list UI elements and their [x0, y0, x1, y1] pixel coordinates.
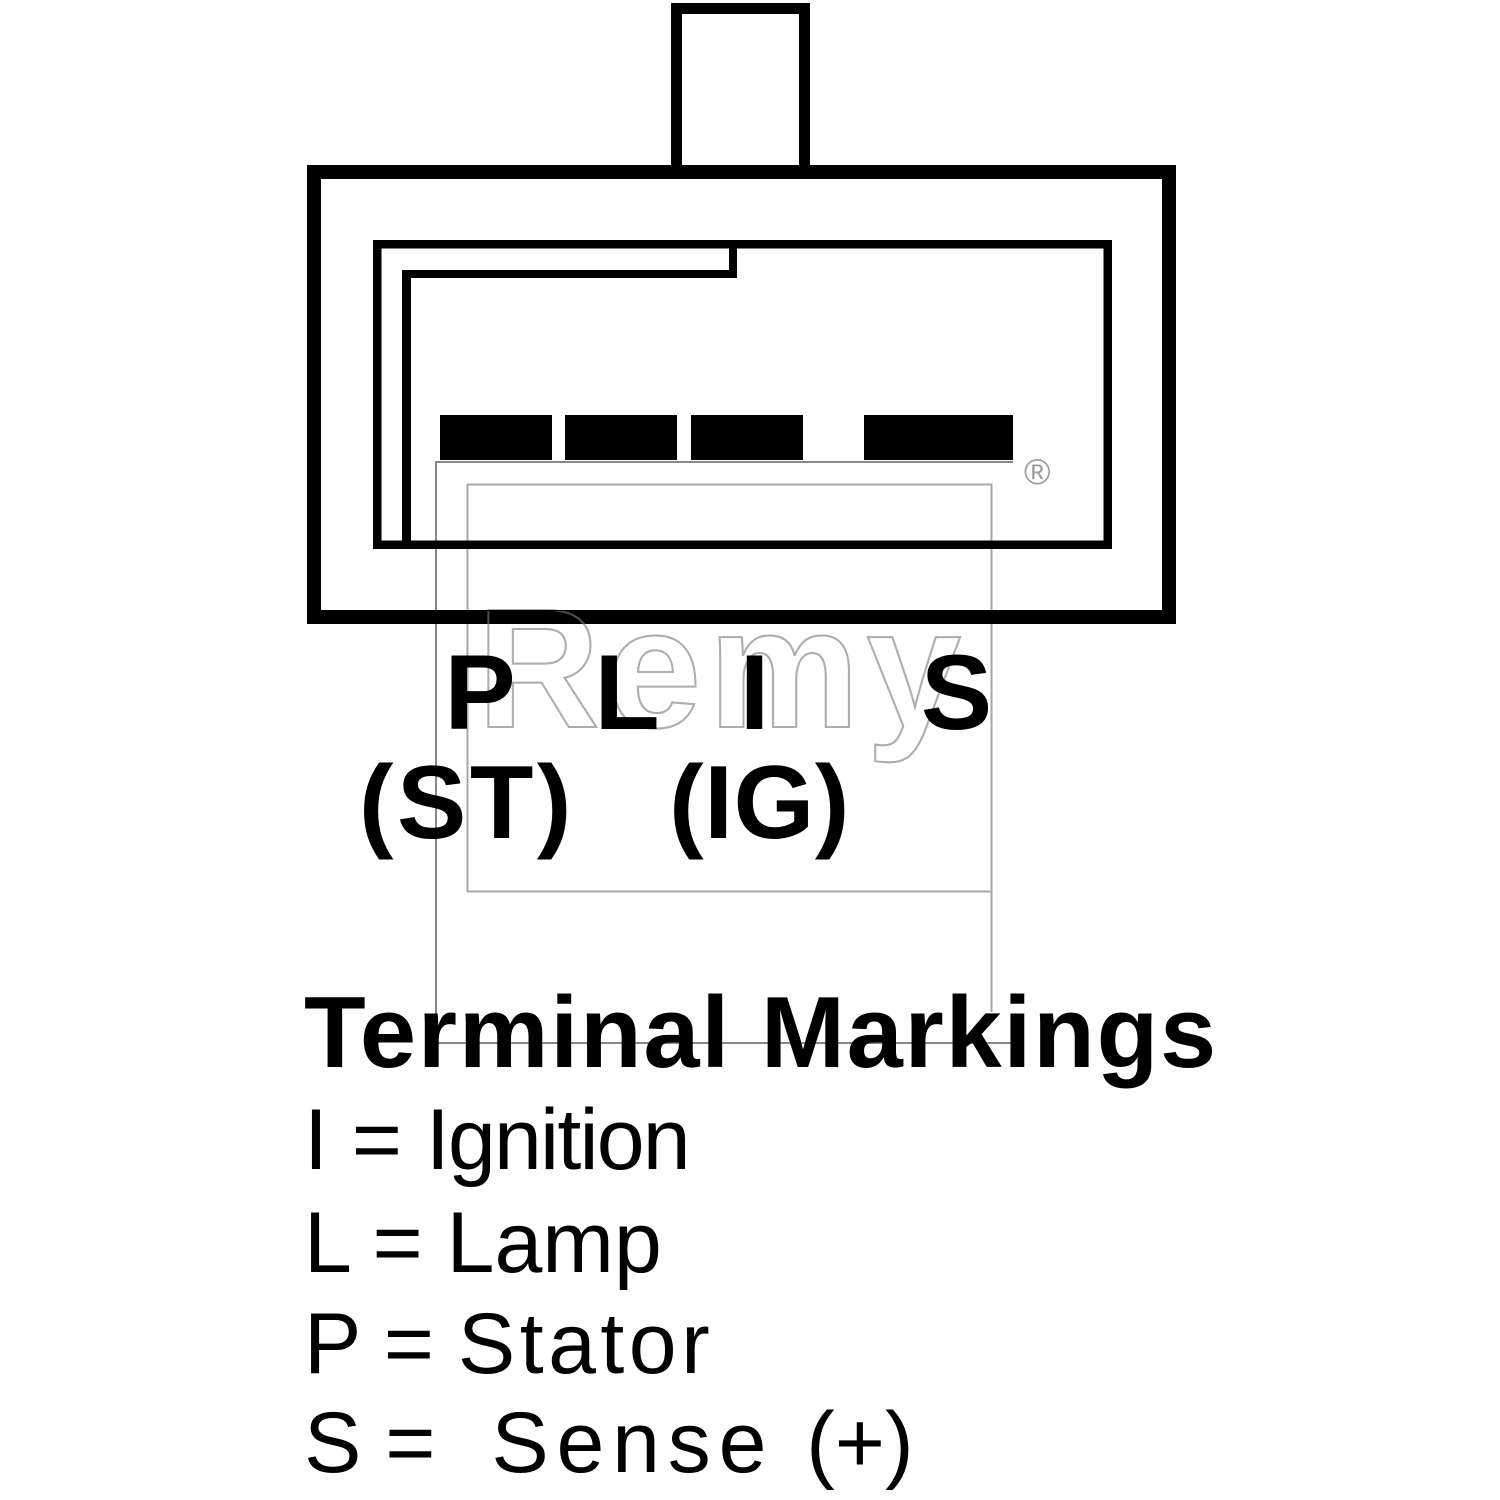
svg-text:L: L — [594, 632, 659, 752]
svg-text:Terminal Markings: Terminal Markings — [304, 977, 1218, 1089]
svg-text:I = Ignition: I = Ignition — [304, 1092, 689, 1188]
svg-text:(ST): (ST) — [359, 745, 575, 861]
svg-text:P: P — [444, 632, 515, 752]
svg-text:®: ® — [1024, 451, 1051, 492]
svg-text:L = Lamp: L = Lamp — [304, 1195, 662, 1291]
svg-text:I: I — [740, 632, 770, 752]
svg-text:S: S — [921, 632, 992, 752]
svg-text:S = Sense (+): S = Sense (+) — [304, 1395, 914, 1491]
svg-text:(IG): (IG) — [669, 745, 850, 861]
svg-text:P = Stator: P = Stator — [304, 1296, 714, 1392]
